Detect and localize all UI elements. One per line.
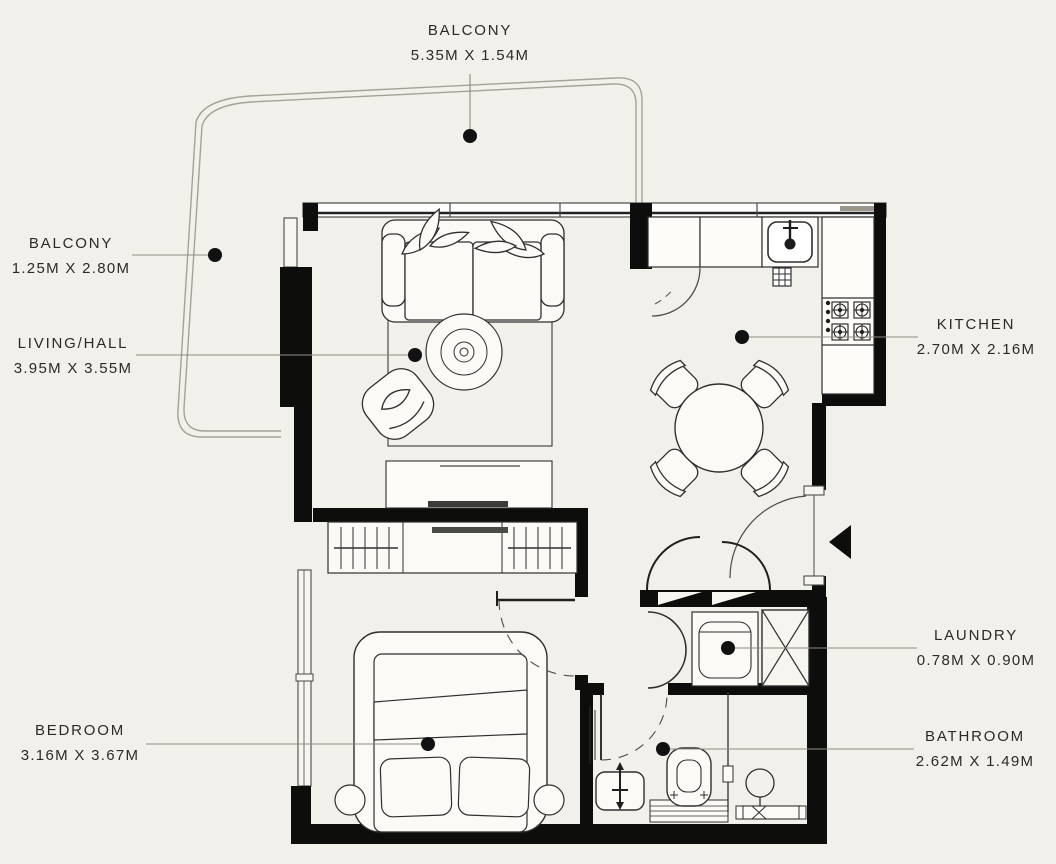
dining-set (647, 357, 793, 501)
label-bathroom-name: BATHROOM (900, 724, 1050, 749)
label-balcony-left: BALCONY 1.25M X 2.80M (8, 231, 134, 281)
label-balcony-left-name: BALCONY (8, 231, 134, 256)
bed (335, 632, 564, 832)
pillow (458, 757, 530, 817)
nightstand (335, 785, 365, 815)
label-laundry-name: LAUNDRY (902, 623, 1050, 648)
label-kitchen-dims: 2.70M X 2.16M (902, 337, 1050, 362)
floor-plan-page: BALCONY 5.35M X 1.54M BALCONY 1.25M X 2.… (0, 0, 1056, 864)
label-living-hall: LIVING/HALL 3.95M X 3.55M (8, 331, 138, 381)
label-bedroom-dims: 3.16M X 3.67M (10, 743, 150, 768)
label-bathroom: BATHROOM 2.62M X 1.49M (900, 724, 1050, 774)
label-bathroom-dims: 2.62M X 1.49M (900, 749, 1050, 774)
floor-plan-drawing (0, 0, 1056, 864)
label-laundry: LAUNDRY 0.78M X 0.90M (902, 623, 1050, 673)
pillow (380, 757, 452, 817)
label-bedroom-name: BEDROOM (10, 718, 150, 743)
tv-screen (428, 501, 508, 507)
armchair (354, 361, 441, 448)
label-laundry-dims: 0.78M X 0.90M (902, 648, 1050, 673)
kitchen-sink (768, 220, 812, 286)
label-bedroom: BEDROOM 3.16M X 3.67M (10, 718, 150, 768)
label-balcony-top-name: BALCONY (350, 18, 590, 43)
shower-head (746, 769, 774, 797)
label-balcony-top: BALCONY 5.35M X 1.54M (350, 18, 590, 68)
label-living-hall-dims: 3.95M X 3.55M (8, 356, 138, 381)
coffee-table (426, 314, 502, 390)
tv-console (386, 461, 552, 508)
wardrobe (328, 522, 577, 573)
faucet-icon (785, 239, 796, 250)
label-balcony-top-dims: 5.35M X 1.54M (350, 43, 590, 68)
label-living-hall-name: LIVING/HALL (8, 331, 138, 356)
label-kitchen: KITCHEN 2.70M X 2.16M (902, 312, 1050, 362)
label-kitchen-name: KITCHEN (902, 312, 1050, 337)
entrance-arrow-icon (829, 525, 851, 559)
label-balcony-left-dims: 1.25M X 2.80M (8, 256, 134, 281)
sofa (382, 208, 564, 322)
nightstand (534, 785, 564, 815)
dining-table (675, 384, 763, 472)
